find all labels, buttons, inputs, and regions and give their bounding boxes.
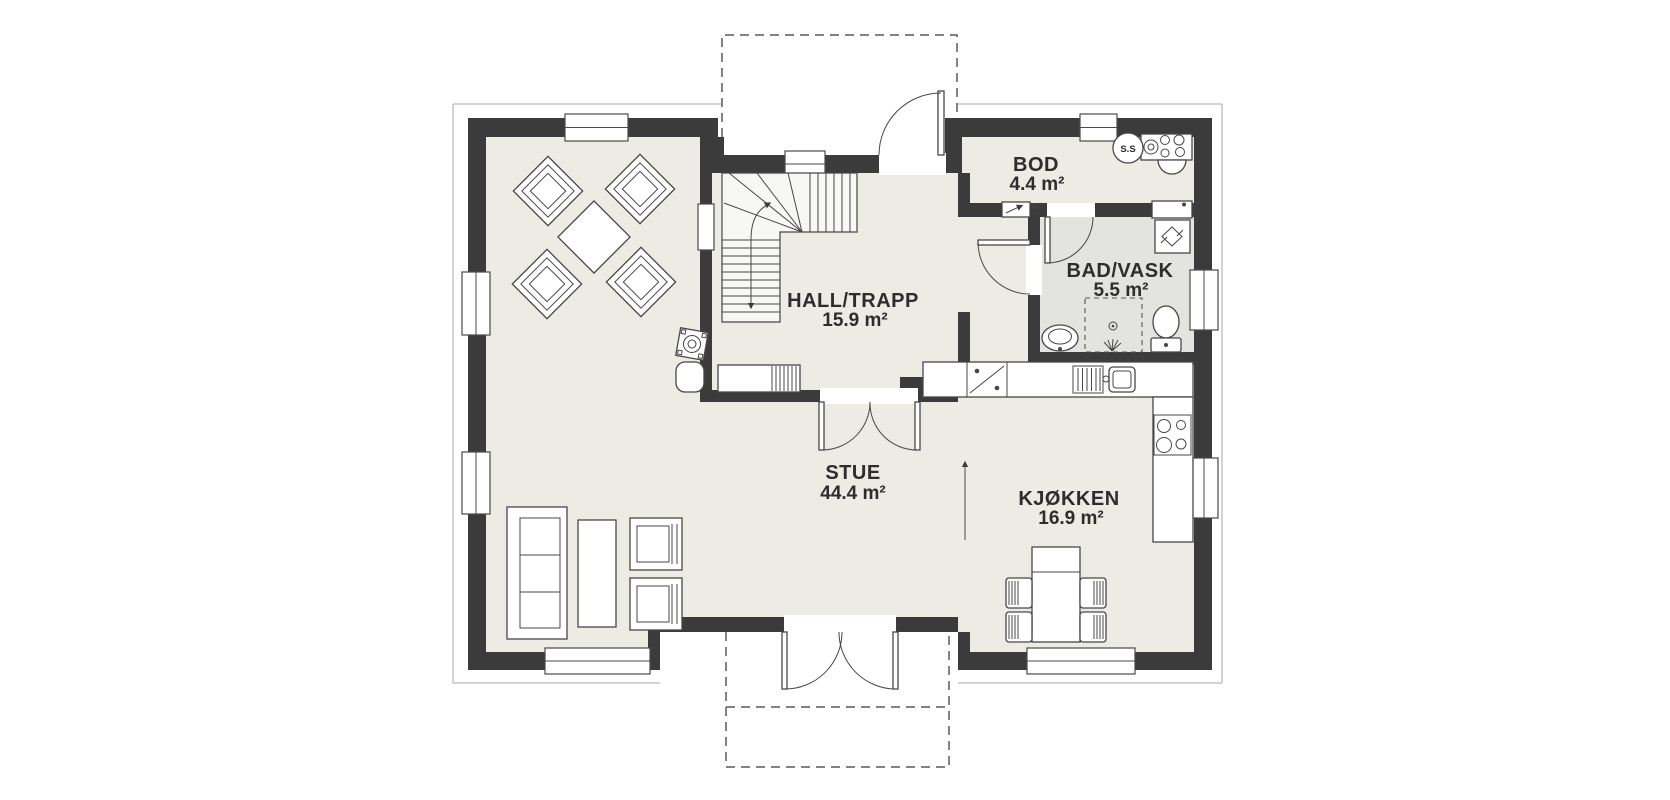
wall [1194, 137, 1212, 652]
room-label-stue-name: STUE [825, 462, 880, 484]
window [462, 452, 490, 514]
window [462, 272, 490, 335]
washer-label: S.S [1120, 144, 1135, 155]
sofa [507, 507, 567, 639]
room-label-bod-area: 4.4 m² [1010, 174, 1065, 195]
window [1027, 648, 1135, 674]
hall-bench [718, 365, 800, 392]
washer-circle-marker: S.S [1113, 133, 1143, 163]
dining-chair [1006, 578, 1032, 608]
kitchen-counter-side [1153, 397, 1193, 542]
floor-plan-page: S.S BOD 4.4 m² BAD/VASK 5.5 m² HALL/TRAP… [0, 0, 1670, 800]
dining-table [1032, 547, 1080, 642]
wall [1028, 295, 1040, 352]
dining-chair [1080, 578, 1106, 608]
wood-stove [676, 328, 708, 360]
water-heater [1155, 220, 1190, 253]
room-label-badvask-area: 5.5 m² [1094, 280, 1149, 301]
wall-opening [698, 204, 714, 250]
floor-plan-drawing: S.S BOD 4.4 m² BAD/VASK 5.5 m² HALL/TRAP… [0, 0, 1670, 800]
room-label-kjokken-area: 16.9 m² [1038, 508, 1103, 529]
window [1190, 458, 1218, 518]
firewood-basket [676, 362, 704, 392]
coffee-table [578, 520, 616, 627]
wall [700, 137, 712, 402]
wall [958, 632, 970, 652]
room-label-hall-name: HALL/TRAPP [787, 290, 919, 312]
bottom-porch-recess [660, 632, 958, 690]
room-label-hall-area: 15.9 m² [822, 310, 887, 331]
window [1080, 114, 1117, 141]
toilet [1151, 306, 1181, 352]
electrical-panel [1002, 202, 1030, 217]
window [1190, 270, 1218, 330]
window [545, 648, 650, 674]
armchair [630, 578, 682, 630]
room-label-badvask-name: BAD/VASK [1067, 260, 1174, 282]
wall [468, 137, 486, 652]
top-porch-recess [712, 118, 945, 155]
wall [958, 312, 970, 362]
dining-chair [1080, 612, 1106, 642]
room-label-bod-name: BOD [1013, 154, 1059, 176]
dining-chair [1006, 612, 1032, 642]
room-label-kjokken-name: KJØKKEN [1018, 488, 1119, 510]
armchair [630, 518, 682, 570]
window [565, 114, 628, 141]
cabinet [1152, 201, 1192, 218]
bathroom-sink [1042, 325, 1078, 351]
room-label-stue-area: 44.4 m² [820, 483, 885, 504]
kitchen-counter-top [923, 362, 1193, 397]
